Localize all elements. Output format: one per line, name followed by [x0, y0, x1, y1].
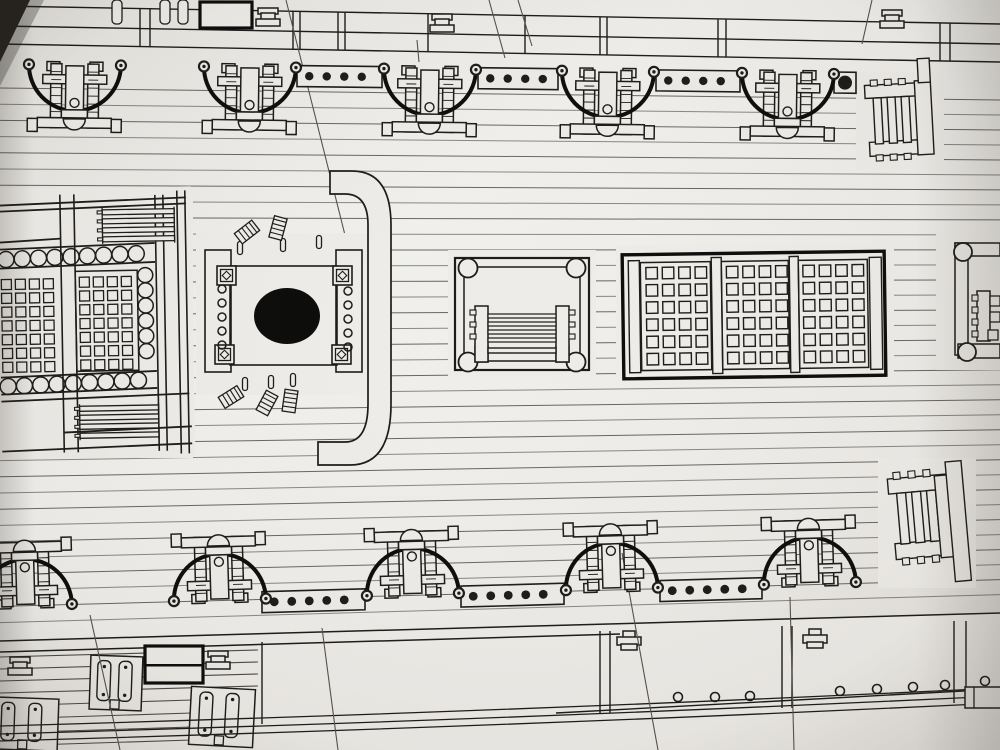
photographed-blueprint-page: Photographed page of a wooden warship mo… — [0, 0, 1000, 750]
photo-lighting-overlay — [0, 0, 1000, 750]
ship-deck-plan-drawing — [0, 0, 1000, 750]
